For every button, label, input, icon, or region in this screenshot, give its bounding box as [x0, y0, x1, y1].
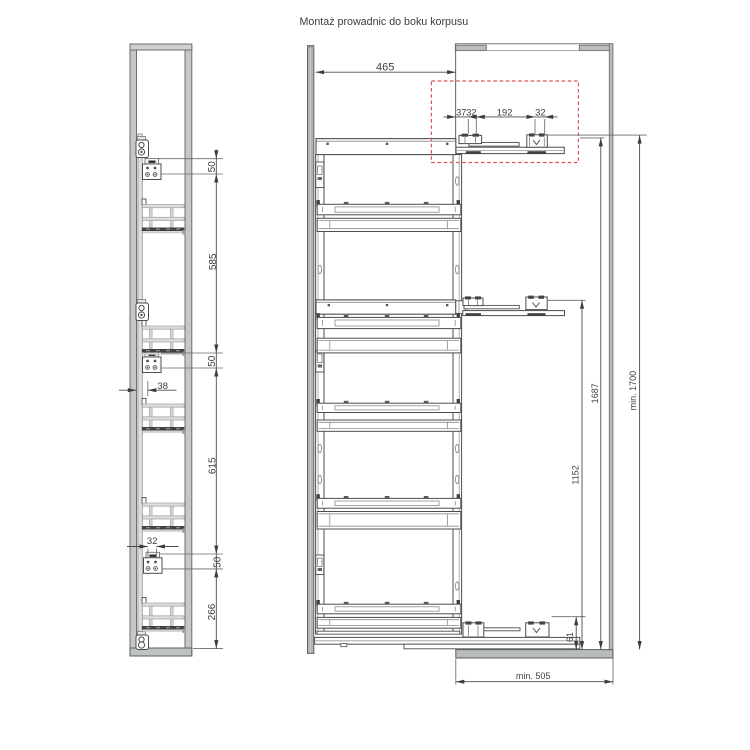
- svg-text:50: 50: [212, 556, 223, 568]
- svg-text:50: 50: [207, 355, 218, 367]
- svg-text:266: 266: [207, 603, 218, 620]
- svg-text:192: 192: [497, 106, 513, 117]
- svg-text:Montaż prowadnic do boku korpu: Montaż prowadnic do boku korpusu: [300, 16, 469, 28]
- svg-text:37: 37: [456, 106, 466, 117]
- svg-text:585: 585: [208, 253, 219, 270]
- svg-text:32: 32: [466, 106, 476, 117]
- svg-text:32: 32: [147, 536, 158, 547]
- svg-text:615: 615: [208, 457, 219, 474]
- svg-text:465: 465: [376, 61, 394, 73]
- svg-text:min. 505: min. 505: [516, 671, 551, 681]
- svg-text:61: 61: [565, 632, 575, 642]
- svg-text:32: 32: [535, 106, 545, 117]
- svg-text:38: 38: [157, 381, 168, 392]
- svg-text:1152: 1152: [571, 465, 581, 484]
- svg-text:1687: 1687: [590, 383, 600, 403]
- svg-text:50: 50: [207, 161, 218, 173]
- svg-text:min. 1700: min. 1700: [628, 371, 638, 411]
